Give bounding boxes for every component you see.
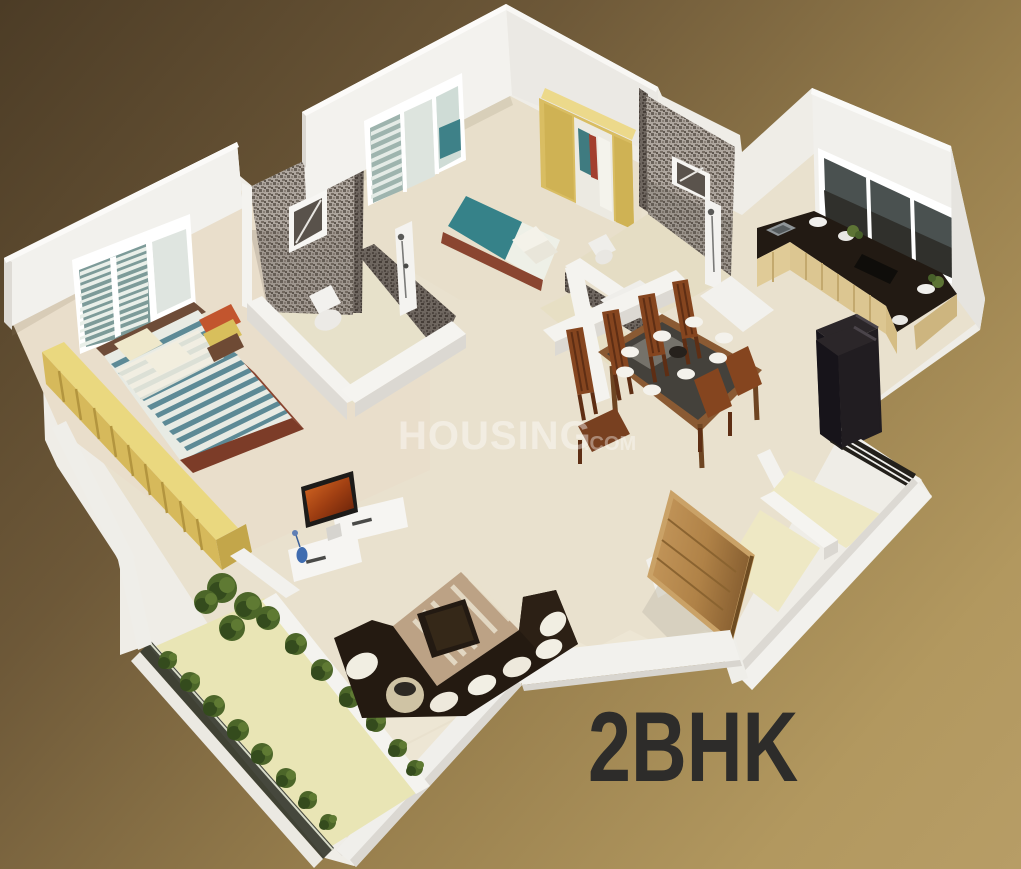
svg-text:.COM: .COM [584,433,636,455]
svg-text:HOUSING: HOUSING [398,414,592,458]
svg-text:2BHK: 2BHK [588,692,798,802]
